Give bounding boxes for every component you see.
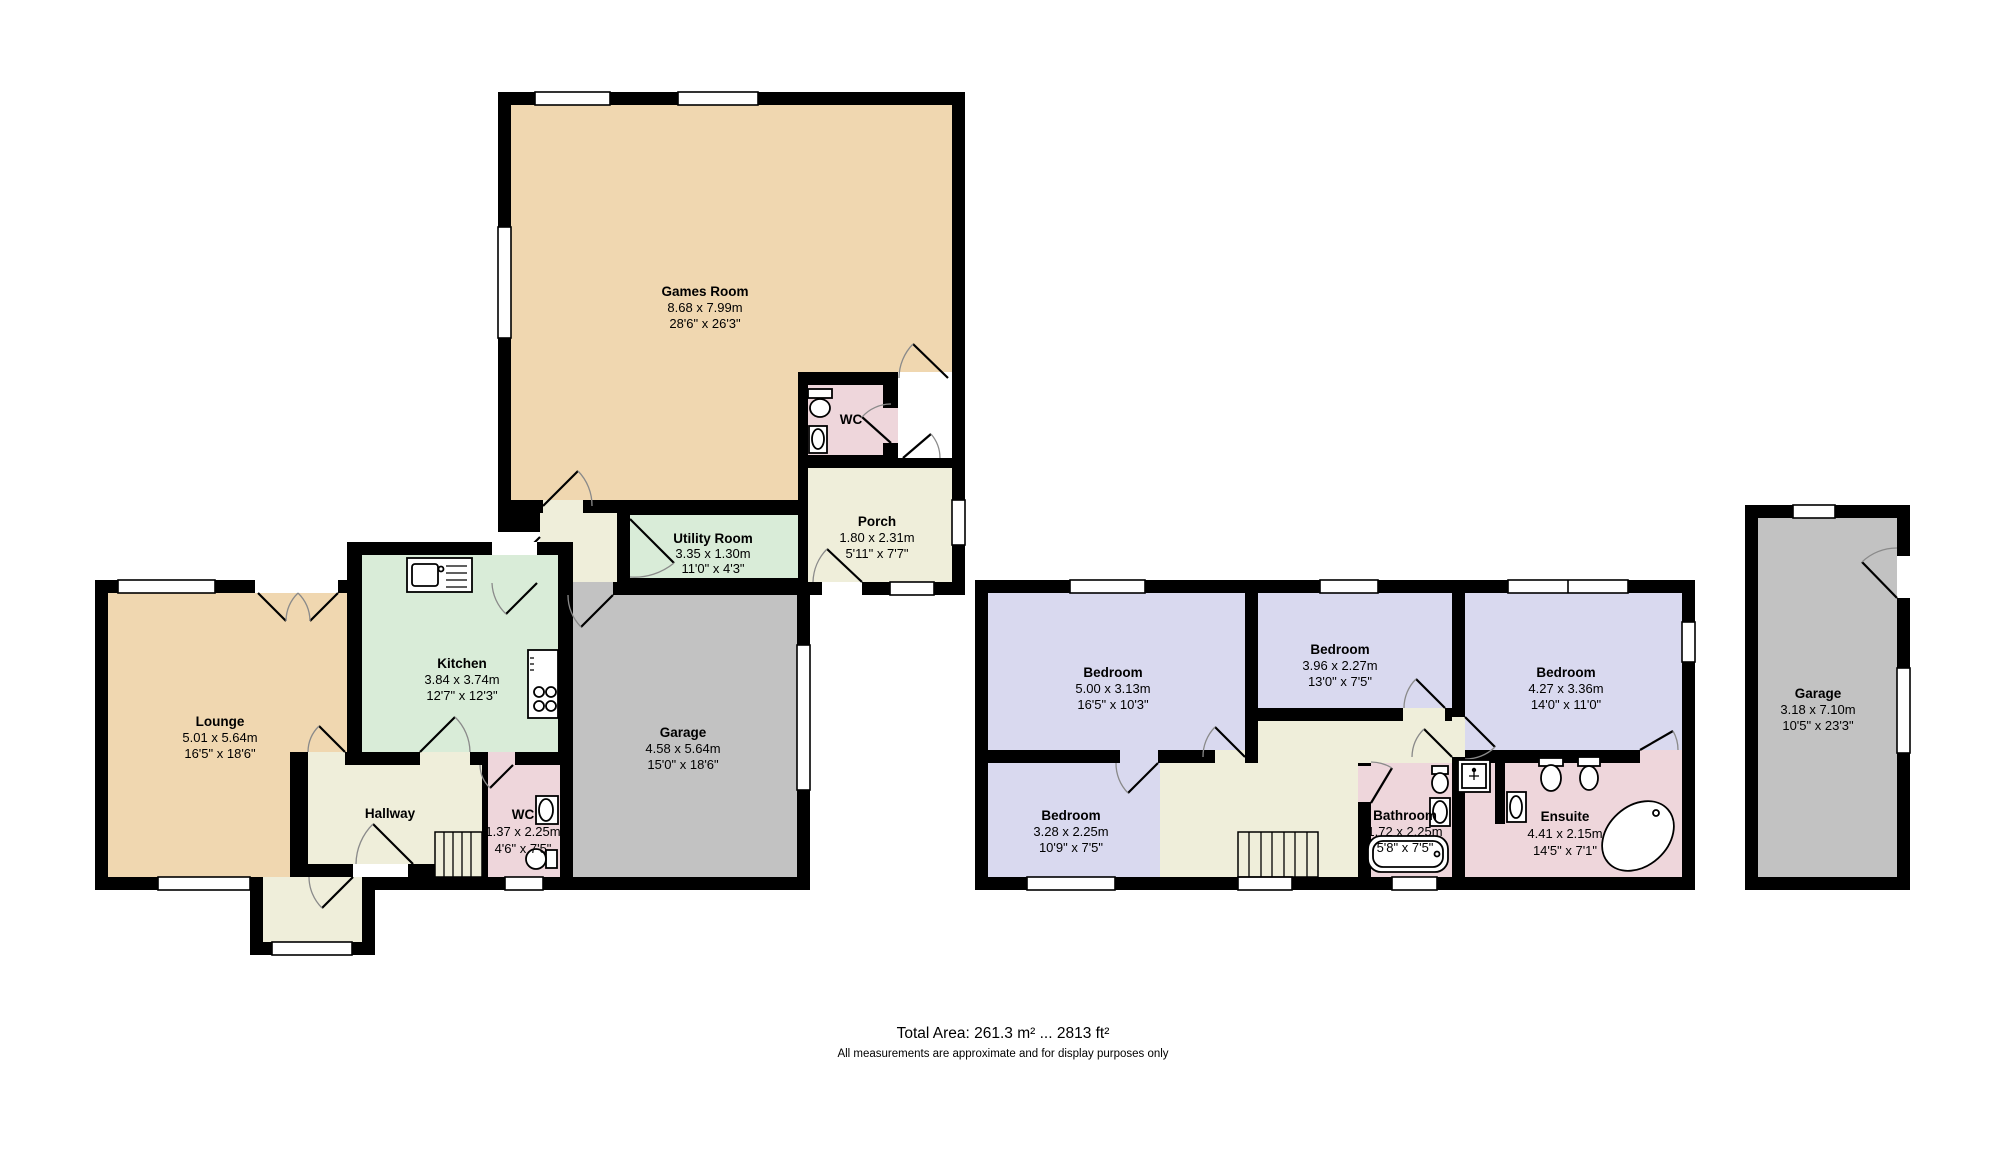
room-dim: 1.37 x 2.25m: [485, 824, 560, 839]
french-door-opening: [255, 580, 338, 593]
kitchen-sink-icon: [407, 558, 472, 592]
window: [498, 227, 511, 338]
room-dim: 1.72 x 2.25m: [1367, 824, 1442, 839]
room-dim: 5.01 x 5.64m: [182, 730, 257, 745]
room-dim: 4.58 x 5.64m: [645, 741, 720, 756]
window: [1238, 877, 1292, 890]
stairs: [435, 832, 482, 877]
room-dim: 4.27 x 3.36m: [1528, 681, 1603, 696]
window: [505, 877, 543, 890]
room-dim: 11'0" x 4'3": [681, 561, 744, 576]
door-opening: [822, 582, 862, 595]
room-dim: 14'0" x 11'0": [1531, 697, 1602, 712]
toilet-icon: [1432, 766, 1448, 793]
window: [1682, 622, 1695, 662]
disclaimer-text: All measurements are approximate and for…: [837, 1048, 1168, 1060]
room-dim: 16'5" x 10'3": [1077, 697, 1149, 712]
room-dim: 13'0" x 7'5": [1308, 674, 1372, 689]
window: [1897, 668, 1910, 753]
room-dim: 4'6" x 7'5": [495, 841, 552, 856]
room-dim: 28'6" x 26'3": [669, 316, 741, 331]
window: [1320, 580, 1378, 593]
door-opening: [1358, 766, 1371, 802]
window: [678, 92, 758, 105]
window: [952, 500, 965, 545]
door-opening: [420, 752, 470, 765]
room-dim: 5'11" x 7'7": [845, 546, 908, 561]
door-opening: [1452, 717, 1465, 757]
room-dim: 5'8" x 7'5": [1377, 840, 1434, 855]
door-opening: [1640, 750, 1682, 763]
room-label: Garage: [1795, 686, 1842, 701]
wall-stub: [1495, 756, 1505, 824]
shower-icon: [1458, 760, 1490, 792]
room-dim: 8.68 x 7.99m: [667, 300, 742, 315]
window: [272, 942, 352, 955]
room-dim: 3.28 x 2.25m: [1033, 824, 1108, 839]
bidet-icon: [1578, 757, 1600, 790]
room-label: Kitchen: [437, 656, 487, 671]
room-dim: 16'5" x 18'6": [184, 746, 256, 761]
floor-entry-porch: [263, 877, 362, 942]
entry-nook: [898, 372, 952, 458]
room-dim: 5.00 x 3.13m: [1075, 681, 1150, 696]
room-dim: 3.96 x 2.27m: [1302, 658, 1377, 673]
room-dim: 10'9" x 7'5": [1039, 840, 1103, 855]
hob-icon: [528, 650, 558, 718]
sink-icon: [809, 426, 827, 453]
floor-landing: [1160, 763, 1358, 877]
door-opening: [1120, 750, 1158, 763]
sink-icon: [1507, 792, 1526, 822]
room-label: Porch: [858, 514, 896, 529]
toilet-icon: [1539, 758, 1563, 791]
background: [0, 0, 2000, 1156]
door-opening: [543, 500, 583, 513]
room-dim: 15'0" x 18'6": [647, 757, 719, 772]
room-dim: 1.80 x 2.31m: [839, 530, 914, 545]
room-dim: 3.18 x 7.10m: [1780, 702, 1855, 717]
window: [1027, 877, 1115, 890]
room-label: Bedroom: [1310, 642, 1369, 657]
room-dim: 10'5" x 23'3": [1782, 718, 1854, 733]
room-label: Hallway: [365, 806, 416, 821]
room-label: WC: [840, 412, 863, 427]
room-label: Ensuite: [1541, 809, 1590, 824]
room-dim: 4.41 x 2.15m: [1527, 826, 1602, 841]
door-opening: [488, 752, 515, 765]
door-opening: [308, 752, 345, 765]
room-label: Bedroom: [1083, 665, 1142, 680]
room-label: Garage: [660, 725, 707, 740]
front-door-opening: [353, 864, 408, 877]
room-dim: 3.84 x 3.74m: [424, 672, 499, 687]
total-area-text: Total Area: 261.3 m² ... 2813 ft²: [897, 1025, 1110, 1042]
door-opening: [492, 542, 537, 555]
door-opening: [1403, 708, 1445, 721]
floor-games-room: [511, 105, 798, 500]
room-label: Bedroom: [1041, 808, 1100, 823]
room-label: Bedroom: [1536, 665, 1595, 680]
floor-landing: [1258, 721, 1452, 763]
door-opening: [573, 582, 613, 595]
room-dim: 12'7" x 12'3": [426, 688, 498, 703]
window: [1070, 580, 1145, 593]
window: [158, 877, 250, 890]
room-label: Lounge: [196, 714, 245, 729]
window: [890, 582, 934, 595]
room-label: Bathroom: [1373, 808, 1437, 823]
sink-icon: [536, 796, 558, 824]
window: [535, 92, 610, 105]
floorplan-page: Games Room 8.68 x 7.99m 28'6" x 26'3" WC…: [0, 0, 2000, 1156]
room-label: WC: [512, 807, 535, 822]
room-label: Games Room: [661, 284, 748, 299]
window: [118, 580, 215, 593]
door-opening: [1897, 556, 1910, 598]
room-label: Utility Room: [673, 531, 753, 546]
room-dim: 14'5" x 7'1": [1533, 843, 1597, 858]
window: [1793, 505, 1835, 518]
window: [1392, 877, 1437, 890]
toilet-icon: [808, 389, 832, 417]
floor-plan-svg: Games Room 8.68 x 7.99m 28'6" x 26'3" WC…: [0, 0, 2000, 1156]
window: [797, 645, 810, 790]
room-dim: 3.35 x 1.30m: [675, 546, 750, 561]
